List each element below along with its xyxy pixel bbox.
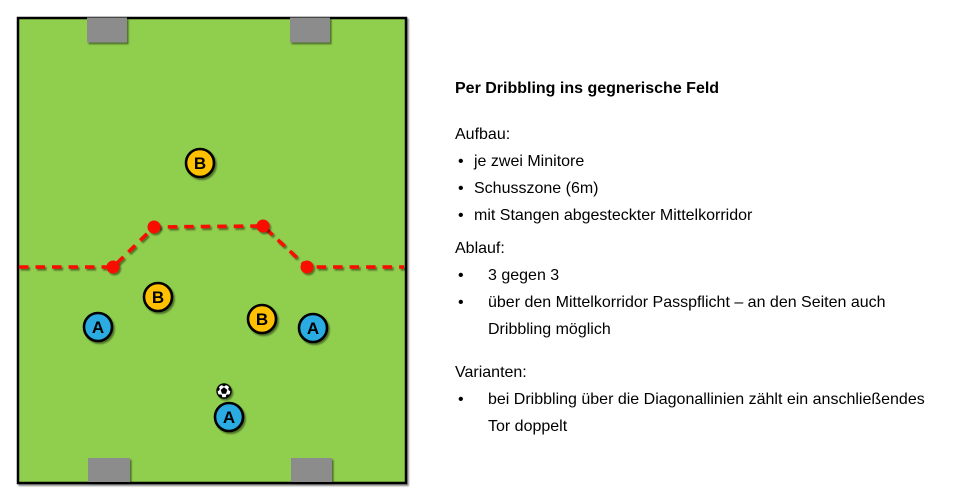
section-heading: Ablauf:: [455, 235, 945, 262]
description-panel: Per Dribbling ins gegnerische Feld Aufba…: [455, 75, 945, 440]
player-marker-b: B: [144, 283, 172, 311]
bullet-text: Schusszone (6m): [474, 175, 945, 202]
player-label: A: [223, 408, 235, 427]
player-marker-a: A: [299, 314, 327, 342]
training-exercise-slide: B B B A A A Per Dribbling ins gegnerisch…: [0, 0, 974, 502]
player-label: B: [194, 154, 206, 173]
section-heading: Aufbau:: [455, 121, 945, 148]
player-marker-b: B: [248, 305, 276, 333]
mini-goal-top-right: [290, 18, 330, 43]
section-heading: Varianten:: [455, 359, 945, 386]
corridor-pole: [148, 221, 161, 234]
list-item: • 3 gegen 3: [455, 262, 945, 289]
corridor-pole: [257, 220, 270, 233]
mini-goal-bottom-right: [291, 458, 332, 482]
bullet-text: je zwei Minitore: [474, 148, 945, 175]
player-label: A: [307, 319, 319, 338]
bullet-glyph: •: [455, 289, 488, 343]
corridor-pole: [107, 261, 120, 274]
mini-goal-bottom-left: [88, 458, 130, 482]
list-item: • über den Mittelkorridor Passpflicht – …: [455, 289, 945, 343]
bullet-text: 3 gegen 3: [488, 262, 945, 289]
list-item: • bei Dribbling über die Diagonallinien …: [455, 386, 945, 440]
bullet-text: mit Stangen abgesteckter Mittelkorridor: [474, 202, 945, 229]
list-item: • mit Stangen abgesteckter Mittelkorrido…: [455, 202, 945, 229]
bullet-glyph: •: [455, 175, 474, 202]
pitch-field: [18, 18, 406, 483]
bullet-text: über den Mittelkorridor Passpflicht – an…: [488, 289, 945, 343]
list-item: • Schusszone (6m): [455, 175, 945, 202]
section-aufbau: Aufbau: • je zwei Minitore • Schusszone …: [455, 121, 945, 229]
player-marker-a: A: [215, 403, 243, 431]
section-varianten: Varianten: • bei Dribbling über die Diag…: [455, 359, 945, 440]
bullet-glyph: •: [455, 262, 488, 289]
player-marker-a: A: [84, 313, 112, 341]
mini-goal-top-left: [87, 18, 127, 43]
bullet-list: • je zwei Minitore • Schusszone (6m) • m…: [455, 148, 945, 229]
bullet-glyph: •: [455, 148, 474, 175]
bullet-text: bei Dribbling über die Diagonallinien zä…: [488, 386, 945, 440]
bullet-glyph: •: [455, 386, 488, 440]
player-label: B: [152, 288, 164, 307]
player-label: A: [92, 318, 104, 337]
bullet-list: • bei Dribbling über die Diagonallinien …: [455, 386, 945, 440]
list-item: • je zwei Minitore: [455, 148, 945, 175]
exercise-title: Per Dribbling ins gegnerische Feld: [455, 75, 945, 102]
player-marker-b: B: [186, 149, 214, 177]
corridor-pole: [301, 261, 314, 274]
bullet-list: • 3 gegen 3 • über den Mittelkorridor Pa…: [455, 262, 945, 343]
player-label: B: [256, 310, 268, 329]
bullet-glyph: •: [455, 202, 474, 229]
section-ablauf: Ablauf: • 3 gegen 3 • über den Mittelkor…: [455, 235, 945, 343]
training-pitch-diagram: B B B A A A: [0, 0, 440, 502]
